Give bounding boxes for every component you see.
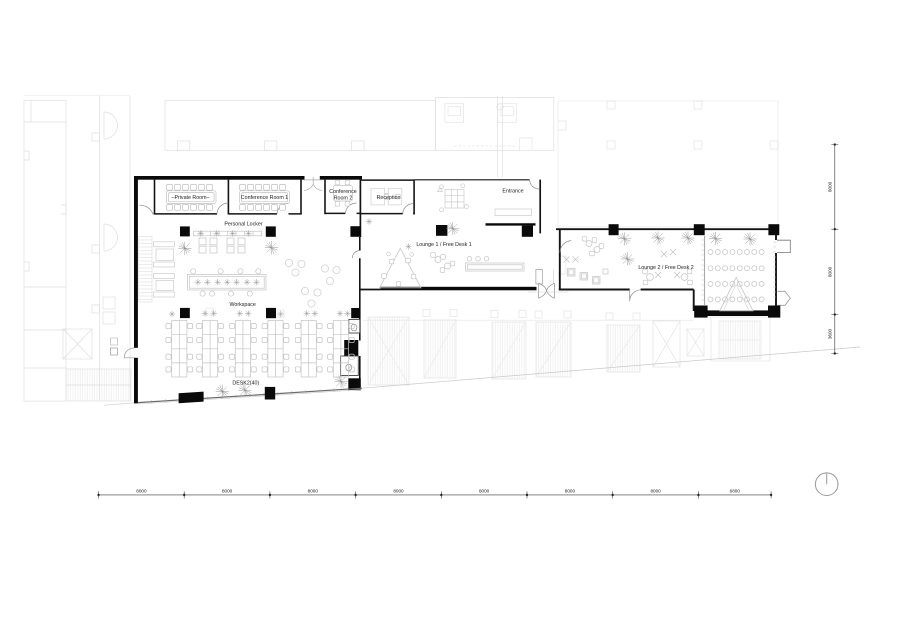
- svg-text:Workspace: Workspace: [229, 302, 255, 308]
- svg-text:8000: 8000: [650, 488, 661, 493]
- svg-text:8000: 8000: [565, 488, 576, 493]
- svg-text:8000: 8000: [222, 488, 233, 493]
- svg-text:6800: 6800: [730, 488, 741, 493]
- svg-text:Conference Room 1: Conference Room 1: [241, 195, 288, 201]
- svg-text:Personal Locker: Personal Locker: [224, 222, 263, 228]
- svg-text:3600: 3600: [828, 328, 833, 339]
- svg-text:8000: 8000: [136, 488, 147, 493]
- svg-text:8000: 8000: [479, 488, 490, 493]
- svg-text:8000: 8000: [828, 181, 833, 192]
- svg-text:DESK2(40): DESK2(40): [232, 381, 259, 387]
- svg-text:Conference: Conference: [329, 189, 356, 195]
- svg-text:8000: 8000: [393, 488, 404, 493]
- svg-text:8000: 8000: [308, 488, 319, 493]
- svg-text:Lounge 2 / Free Desk 2: Lounge 2 / Free Desk 2: [638, 265, 693, 271]
- svg-text:Reception: Reception: [377, 195, 401, 201]
- svg-text:8000: 8000: [828, 266, 833, 277]
- svg-text:Room 2: Room 2: [334, 196, 353, 202]
- svg-text:Entrance: Entrance: [502, 189, 523, 195]
- svg-text:Lounge 1 / Free Desk 1: Lounge 1 / Free Desk 1: [416, 242, 471, 248]
- svg-text:–Private Room–: –Private Room–: [172, 195, 210, 201]
